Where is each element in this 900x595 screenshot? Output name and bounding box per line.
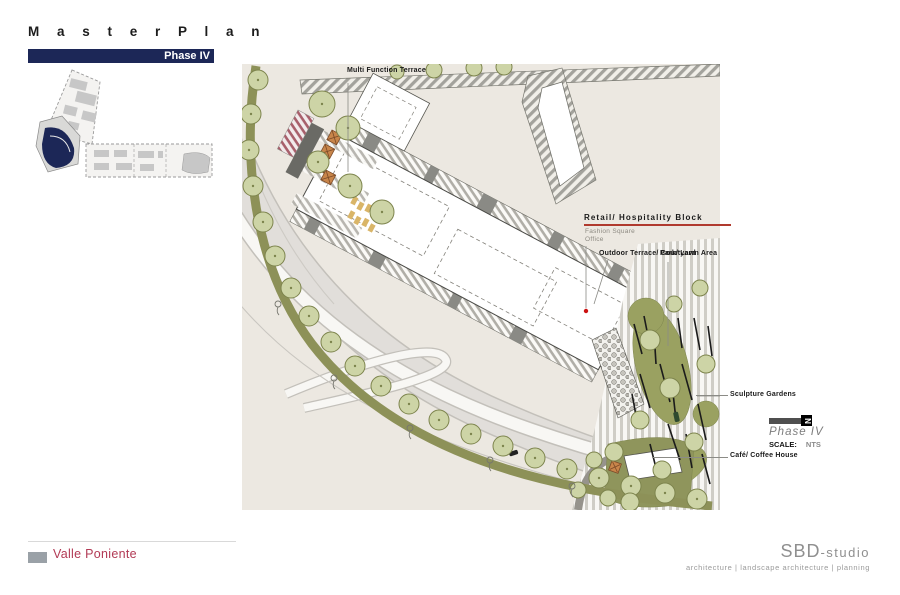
- scale-label: SCALE:: [769, 440, 797, 449]
- studio-tagline: architecture | landscape architecture | …: [686, 563, 870, 572]
- label-office: Office: [585, 236, 604, 243]
- label-park-lawn: Park/ Lawn Area: [660, 250, 717, 257]
- page-title: M a s t e r P l a n: [28, 24, 267, 39]
- north-arrow-icon: N: [801, 415, 812, 426]
- phase-badge-bar: Phase IV: [28, 49, 214, 63]
- site-plan: [242, 64, 720, 510]
- north-bar: [769, 418, 802, 424]
- sculpture-leader-line: [696, 395, 728, 396]
- phase-badge-label: Phase IV: [164, 51, 210, 62]
- project-name: Valle Poniente: [53, 547, 137, 561]
- footer-rule: [28, 541, 236, 542]
- scale-value: NTS: [806, 440, 821, 449]
- label-retail-hospitality: Retail/ Hospitality Block: [584, 213, 703, 222]
- studio-signature: SBD-studio architecture | landscape arch…: [686, 542, 870, 572]
- retail-underline: [584, 224, 731, 226]
- label-sculpture-gardens: Sculpture Gardens: [730, 391, 796, 398]
- project-color-swatch: [28, 552, 47, 563]
- presentation-slide: M a s t e r P l a n Phase IV: [0, 0, 900, 595]
- label-multi-function-terrace: Multi Function Terrace: [347, 67, 426, 74]
- legend-phase-label: Phase IV: [769, 426, 824, 438]
- red-dot-marker: [584, 309, 588, 313]
- label-fashion-square: Fashion Square: [585, 228, 635, 235]
- key-plan-thumbnail: [34, 66, 224, 192]
- studio-name: SBD-studio: [686, 542, 870, 560]
- label-cafe: Café/ Coffee House: [730, 452, 798, 459]
- legend-scale: SCALE:NTS: [769, 440, 821, 449]
- key-plan-horizontal-wing: [86, 144, 212, 177]
- cafe-leader-line: [652, 457, 728, 458]
